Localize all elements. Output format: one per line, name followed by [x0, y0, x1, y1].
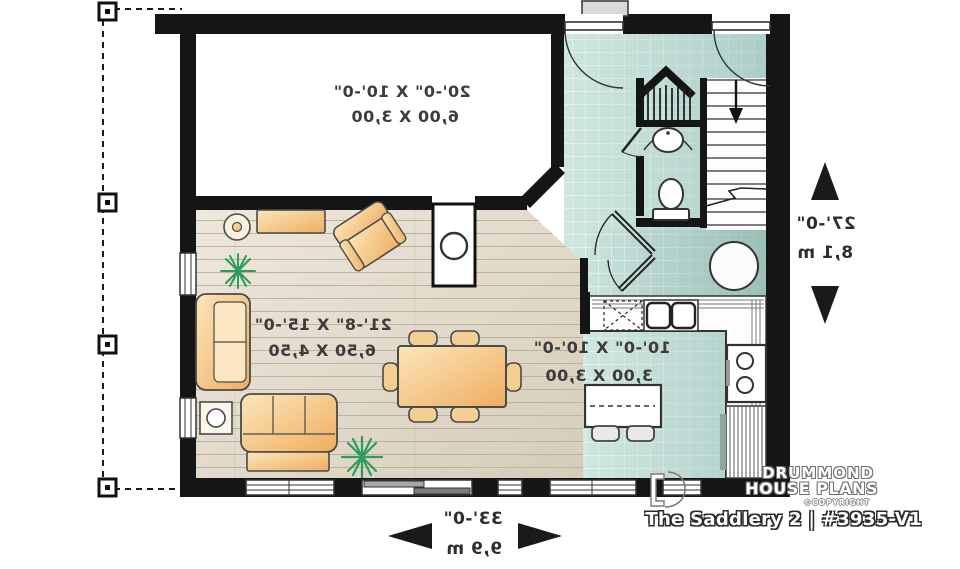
width-metric-label: 9,9 m: [446, 539, 502, 559]
window: [246, 480, 334, 495]
drummond-d-logo-icon: [645, 468, 687, 512]
kitchen-size-imperial: 10'-0" X 10'-0": [533, 338, 671, 357]
window: [180, 398, 196, 438]
loveseat-icon: [241, 394, 337, 452]
kitchen-sink-icon: [644, 300, 698, 331]
porch-post: [99, 194, 116, 211]
sofa-icon: [196, 294, 250, 390]
floor-plan-page: 27'-0" 8,1 m 33'-0" 9,9 m 20'-0" X 10'-0…: [0, 0, 960, 569]
bonus-room-size-imperial: 20'-0" X 10'-0": [333, 82, 471, 101]
tv-console-icon: [257, 210, 325, 233]
staircase: [706, 78, 766, 230]
patio-sliding-door: [362, 480, 472, 495]
stool-icon: [592, 426, 619, 441]
stool-icon: [627, 426, 654, 441]
branding-block: DRUMMOND HOUSE PLANS ©COPYRIGHT The Sadd…: [645, 466, 922, 530]
wood-stove-icon: [433, 204, 475, 286]
dining-table: [398, 346, 506, 407]
kitchen-size-metric: 3,00 X 3,00: [545, 366, 653, 385]
depth-metric-label: 8,1 m: [797, 243, 853, 263]
window: [180, 253, 196, 295]
range-stove-icon: [726, 345, 766, 402]
depth-imperial-label: 27'-0": [796, 214, 856, 234]
plant-icon: [221, 254, 255, 288]
top-wall: [155, 14, 790, 34]
front-stoop: [582, 1, 628, 16]
porch-post: [99, 336, 116, 353]
side-table-icon: [224, 214, 250, 240]
porch-post: [99, 3, 116, 20]
living-room-size-metric: 6,50 X 4,50: [268, 341, 376, 360]
window: [550, 480, 636, 495]
width-imperial-label: 33'-0": [443, 509, 503, 529]
plant-icon: [342, 437, 382, 477]
bonus-room-size-metric: 6,00 X 3,00: [351, 107, 459, 126]
round-table-icon: [710, 242, 758, 290]
living-room-size-imperial: 21'-8" X 15'-0": [254, 315, 392, 334]
lamp-table-icon: [200, 402, 232, 434]
coffee-table-icon: [247, 452, 329, 471]
window: [498, 480, 522, 495]
porch-post: [99, 479, 116, 496]
plan-title: The Saddlery 2 | #3935-V1: [645, 511, 922, 529]
